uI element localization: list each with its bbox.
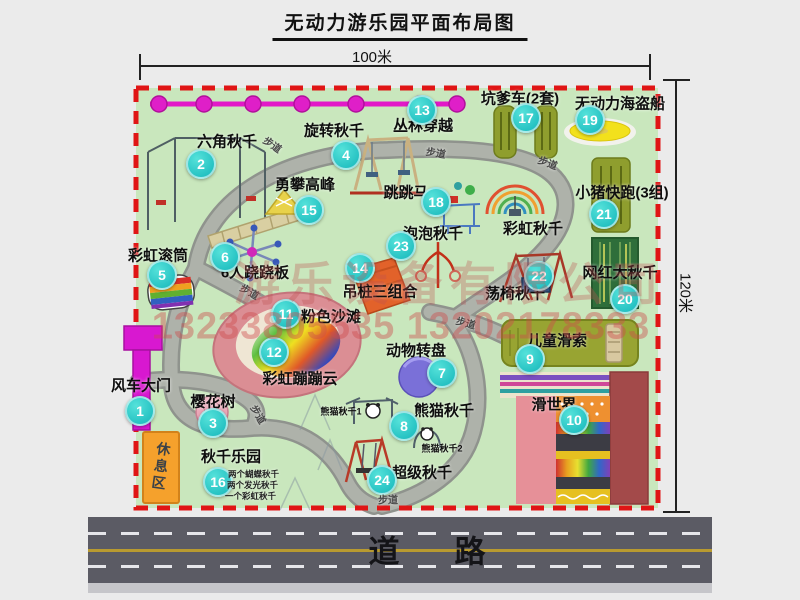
- marker-18: 18: [421, 187, 451, 217]
- marker-15: 15: [294, 195, 324, 225]
- path-label: 步道: [261, 132, 286, 156]
- marker-2: 2: [186, 149, 216, 179]
- sub-label-panda-1: 熊猫秋千1: [320, 405, 361, 418]
- attraction-label-21: 小猪快跑(3组): [575, 182, 668, 203]
- marker-1: 1: [125, 396, 155, 426]
- marker-10: 10: [559, 405, 589, 435]
- marker-13: 13: [407, 95, 437, 125]
- marker-4: 4: [331, 140, 361, 170]
- attraction-label-4: 旋转秋千: [304, 120, 364, 141]
- watermark-phones: 13233805535 13202178333: [152, 306, 651, 349]
- path-label: 步道: [248, 402, 271, 427]
- marker-8: 8: [389, 411, 419, 441]
- marker-9: 9: [515, 344, 545, 374]
- marker-7: 7: [427, 358, 457, 388]
- watermark-company: 游乐设备有限公司: [234, 248, 666, 314]
- park-plan-poster: 无动力游乐园平面布局图 100米 120米: [0, 0, 800, 600]
- sub-label-panda-2: 熊猫秋千2: [421, 442, 462, 455]
- marker-3: 3: [198, 408, 228, 438]
- marker-21: 21: [589, 199, 619, 229]
- marker-24: 24: [367, 465, 397, 495]
- attraction-label-8: 熊猫秋千: [414, 400, 474, 421]
- attraction-label-1: 风车大门: [111, 375, 171, 396]
- attraction-label-12: 彩虹蹦蹦云: [262, 368, 337, 389]
- attraction-label-2: 六角秋千: [197, 131, 257, 152]
- attraction-label-16: 秋千乐园: [201, 446, 261, 467]
- marker-17: 17: [511, 103, 541, 133]
- marker-5: 5: [147, 260, 177, 290]
- label-rainbow-swing: 彩虹秋千: [503, 218, 563, 239]
- path-label: 步道: [425, 143, 447, 161]
- path-label: 步道: [536, 152, 560, 173]
- attraction-label-24: 超级秋千: [392, 462, 452, 483]
- path-label: 步道: [378, 492, 398, 507]
- attraction-label-15: 勇攀高峰: [275, 174, 335, 195]
- swing-park-note-3: 一个彩虹秋千: [225, 490, 276, 502]
- marker-19: 19: [575, 105, 605, 135]
